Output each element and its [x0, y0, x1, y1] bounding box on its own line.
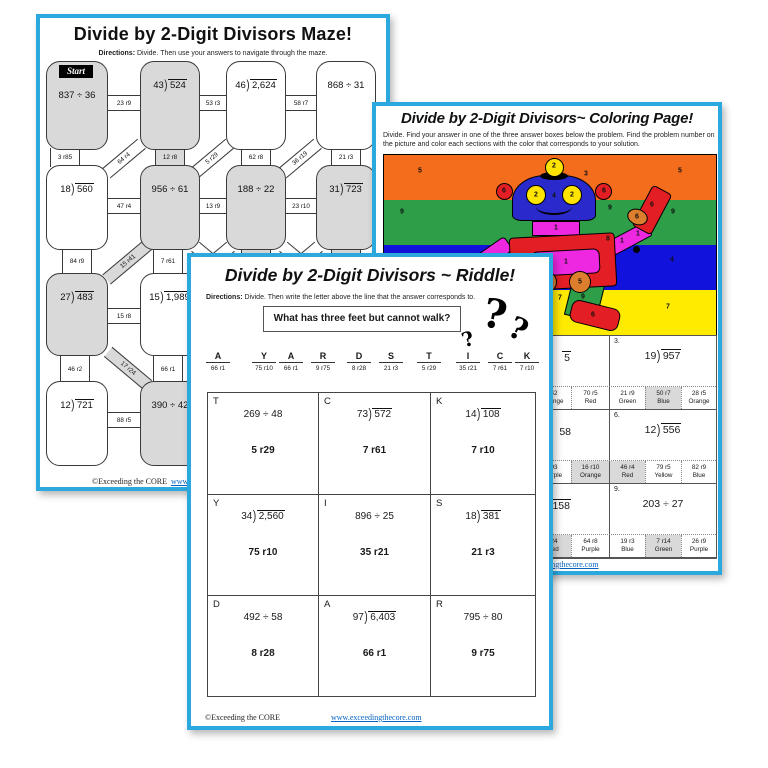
answer-color-name: Purple [581, 546, 599, 555]
blank-line [456, 361, 480, 363]
maze-problem-text: 27)483 [47, 292, 107, 303]
color-by-number-label: 6 [602, 188, 606, 195]
maze-problem-box: 188 ÷ 22 [226, 165, 286, 250]
cell-letter: S [436, 498, 442, 509]
blank-letter: A [215, 351, 222, 361]
maze-answer-label: 36 r19 [291, 150, 309, 167]
answer-value: 82 r9 [692, 464, 706, 473]
maze-answer-label: 7 r61 [161, 258, 175, 265]
maze-path-connector: 23 r9 [107, 95, 141, 111]
color-by-number-label: 5 [578, 279, 582, 286]
riddle-problem-cell: T269 ÷ 485 r29 [208, 393, 318, 494]
maze-problem-text: 31)723 [317, 184, 375, 195]
maze-problem-text: 18)560 [47, 184, 107, 195]
cell-problem: 34)2,560 [208, 511, 318, 522]
maze-title: Divide by 2-Digit Divisors Maze! [40, 24, 386, 45]
color-by-number-label: 2 [552, 163, 556, 170]
worksheet-preview-collage: { "colors": { "page_border": "#2BA9DF", … [0, 0, 768, 768]
website-link[interactable]: www.exceedingthecore.com [331, 713, 422, 722]
maze-path-connector: 88 r5 [107, 412, 141, 428]
maze-path-connector: 36 r19 [278, 138, 322, 178]
color-by-number-label: 9 [608, 205, 612, 212]
maze-problem-box: 43)524 [140, 61, 200, 150]
maze-answer-label: 64 r4 [116, 151, 131, 166]
blank-answer: 75 r10 [255, 365, 273, 372]
problem-fragment-text: 5 [562, 352, 571, 364]
maze-answer-label: 47 r4 [117, 203, 131, 210]
maze-problem-box: 46)2,624 [226, 61, 286, 150]
cell-problem: 73)572 [319, 409, 430, 420]
riddle-directions: Directions: Divide. Then write the lette… [206, 293, 475, 302]
maze-directions: Directions: Divide. Then use your answer… [40, 49, 386, 58]
question-mark-glyph: ? [459, 328, 476, 351]
maze-answer-label: 84 r9 [70, 258, 84, 265]
maze-path-connector: 13 r9 [196, 198, 230, 214]
color-by-number-label: 4 [670, 257, 674, 264]
answer-color-name: Orange [580, 472, 601, 481]
answer-option-cell: 50 r7Blue [645, 387, 681, 409]
answer-color-name: Blue [621, 546, 634, 555]
answer-value: 21 r9 [620, 390, 634, 399]
answer-value: 64 r8 [583, 538, 597, 547]
color-by-number-label: 1 [554, 225, 558, 232]
maze-answer-label: 58 r7 [294, 100, 308, 107]
answer-value: 70 r5 [583, 390, 597, 399]
maze-answer-label: 12 r8 [163, 154, 177, 161]
blank-line [488, 361, 512, 363]
answer-option-cell: 28 r5Orange [681, 387, 716, 409]
blank-answer: 7 r61 [493, 365, 507, 372]
maze-answer-label: 13 r9 [206, 203, 220, 210]
problem-cell: 6.12)556 [609, 410, 716, 460]
problem-number-label: 3. [614, 338, 620, 345]
coloring-title: Divide by 2-Digit Divisors~ Coloring Pag… [376, 110, 718, 127]
blank-line [252, 361, 276, 363]
maze-problem-box: 956 ÷ 61 [140, 165, 200, 250]
maze-answer-label: 66 r1 [161, 366, 175, 373]
blank-line [311, 361, 335, 363]
maze-answer-label: 21 r3 [339, 154, 353, 161]
blank-line [379, 361, 403, 363]
blank-letter: I [467, 351, 470, 361]
cell-letter: C [324, 396, 331, 407]
cell-answer: 7 r61 [319, 445, 430, 456]
color-by-number-label: 1 [620, 238, 624, 245]
problem-text: 203 ÷ 27 [610, 498, 716, 510]
answer-color-name: Green [619, 398, 637, 407]
blank-letter: A [288, 351, 295, 361]
maze-answer-label: 46 r2 [68, 366, 82, 373]
maze-answer-label: 3 r85 [58, 154, 72, 161]
answer-blank: S21 r3 [374, 351, 408, 372]
maze-problem-box: 27)483 [46, 273, 108, 356]
answer-blank: A66 r1 [201, 351, 235, 372]
answer-color-name: Red [585, 398, 597, 407]
maze-answer-label: 15 r41 [119, 253, 137, 270]
color-by-number-label: 9 [581, 294, 585, 301]
maze-answer-label: 17 r24 [119, 360, 137, 377]
answer-value: 50 r7 [656, 390, 670, 399]
answer-color-name: Yellow [655, 472, 673, 481]
blank-letter: C [497, 351, 504, 361]
maze-answer-label: 62 r8 [249, 154, 263, 161]
riddle-problem-cell: A97)6,40366 r1 [318, 595, 430, 696]
color-by-number-label: 7 [666, 304, 670, 311]
blank-answer: 8 r28 [352, 365, 366, 372]
coloring-directions: Divide. Find your answer in one of the t… [383, 131, 715, 150]
blank-letter: T [426, 351, 432, 361]
answer-color-name: Purple [690, 546, 708, 555]
blank-answer: 7 r10 [520, 365, 534, 372]
maze-path-connector: 64 r4 [102, 138, 146, 178]
answer-value: 16 r10 [582, 464, 600, 473]
cell-problem: 795 ÷ 80 [431, 612, 535, 623]
color-by-number-label: 2 [534, 192, 538, 199]
problem-number-label: 9. [614, 486, 620, 493]
cell-answer: 21 r3 [431, 547, 535, 558]
color-by-number-label: 6 [650, 202, 654, 209]
color-by-number-label: 6 [591, 312, 595, 319]
cell-answer: 5 r29 [208, 445, 318, 456]
cell-letter: D [213, 599, 220, 610]
blank-line [279, 361, 303, 363]
answer-option-cell: 19 r3Blue [609, 535, 645, 557]
maze-answer-label: 53 r3 [206, 100, 220, 107]
maze-path-connector: 7 r61 [153, 248, 183, 275]
answer-value: 28 r5 [692, 390, 706, 399]
blank-letter: Y [261, 351, 267, 361]
maze-problem-box: 868 ÷ 31 [316, 61, 376, 150]
blank-answer: 66 r1 [284, 365, 298, 372]
blank-answer: 5 r29 [422, 365, 436, 372]
maze-path-connector: 47 r4 [107, 198, 141, 214]
riddle-problem-cell: D492 ÷ 588 r28 [208, 595, 318, 696]
cell-answer: 7 r10 [431, 445, 535, 456]
answer-blank: A66 r1 [274, 351, 308, 372]
cell-letter: A [324, 599, 330, 610]
answer-option-cell: 26 r9Purple [681, 535, 716, 557]
directions-label: Directions: [206, 294, 243, 301]
answer-blank: D8 r28 [342, 351, 376, 372]
cell-problem: 14)108 [431, 409, 535, 420]
answer-blank: T5 r29 [412, 351, 446, 372]
maze-problem-text: 46)2,624 [227, 80, 285, 91]
color-by-number-label: 4 [552, 193, 556, 200]
answer-option-cell: 16 r10Orange [571, 461, 609, 483]
cell-answer: 66 r1 [319, 648, 430, 659]
answer-color-name: Green [655, 546, 673, 555]
blank-line [515, 361, 539, 363]
maze-answer-label: 5 r29 [204, 151, 219, 166]
problem-fragment-text: 158 [550, 500, 571, 512]
color-by-number-label: 9 [671, 209, 675, 216]
answer-value: 46 r4 [620, 464, 634, 473]
blank-answer: 9 r75 [316, 365, 330, 372]
answer-option-cell: 7 r14Green [645, 535, 681, 557]
blank-letter: S [388, 351, 394, 361]
maze-path-connector: 84 r9 [62, 248, 92, 275]
blank-letter: K [524, 351, 531, 361]
maze-problem-text: 837 ÷ 36 [47, 90, 107, 101]
maze-problem-text: 868 ÷ 31 [317, 80, 375, 91]
directions-text: Divide. Then use your answers to navigat… [137, 50, 328, 57]
problem-cell: 9.203 ÷ 27 [609, 484, 716, 534]
problem-text: 19)957 [610, 350, 716, 362]
color-by-number-label: 1 [636, 231, 640, 238]
maze-answer-label: 23 r10 [292, 203, 310, 210]
maze-problem-box: 12)721 [46, 381, 108, 466]
maze-path-connector: 53 r3 [196, 95, 230, 111]
answer-color-name: Orange [688, 398, 709, 407]
blank-answer: 35 r21 [459, 365, 477, 372]
cell-answer: 9 r75 [431, 648, 535, 659]
answer-value: 26 r9 [692, 538, 706, 547]
color-by-number-label: 5 [678, 168, 682, 175]
maze-problem-text: 43)524 [141, 80, 199, 91]
robot-mouth [536, 199, 572, 215]
cell-answer: 35 r21 [319, 547, 430, 558]
riddle-worksheet-page: Divide by 2-Digit Divisors ~ Riddle! Dir… [187, 253, 553, 730]
copyright-text: ©Exceeding the CORE [205, 713, 280, 722]
color-by-number-label: 9 [400, 209, 404, 216]
maze-problem-text: 956 ÷ 61 [141, 184, 199, 195]
answer-color-name: Blue [693, 472, 706, 481]
answer-option-cell: 79 r5Yellow [645, 461, 681, 483]
riddle-question-box: What has three feet but cannot walk? [263, 306, 461, 332]
color-by-number-label: 6 [502, 188, 506, 195]
problem-cell: 3.19)957 [609, 336, 716, 386]
cell-problem: 97)6,403 [319, 612, 430, 623]
cell-letter: I [324, 498, 327, 509]
blank-line [417, 361, 441, 363]
copyright-text: ©Exceeding the CORE [92, 477, 167, 486]
maze-answer-label: 88 r5 [117, 417, 131, 424]
answer-blank: K7 r10 [510, 351, 544, 372]
answer-color-name: Blue [657, 398, 670, 407]
answer-option-cell: 21 r9Green [609, 387, 645, 409]
blank-letter: R [320, 351, 327, 361]
answer-value: 19 r3 [620, 538, 634, 547]
cell-problem: 18)381 [431, 511, 535, 522]
riddle-title: Divide by 2-Digit Divisors ~ Riddle! [191, 265, 549, 286]
answer-option-cell: 46 r4Red [609, 461, 645, 483]
cell-letter: R [436, 599, 443, 610]
maze-problem-text: 188 ÷ 22 [227, 184, 285, 195]
problem-fragment-text: 58 [559, 426, 571, 438]
answer-color-name: Red [622, 472, 634, 481]
answer-blank: I35 r21 [451, 351, 485, 372]
maze-problem-box: 18)560 [46, 165, 108, 250]
cell-problem: 492 ÷ 58 [208, 612, 318, 623]
start-badge: Start [59, 65, 93, 78]
problem-text: 12)556 [610, 424, 716, 436]
blank-answer: 21 r3 [384, 365, 398, 372]
maze-answer-label: 15 r8 [117, 313, 131, 320]
blank-line [347, 361, 371, 363]
maze-problem-text: 12)721 [47, 400, 107, 411]
riddle-problem-cell: I896 ÷ 2535 r21 [318, 494, 430, 595]
cell-answer: 75 r10 [208, 547, 318, 558]
answer-option-cell: 82 r9Blue [681, 461, 716, 483]
answer-value: 7 r14 [656, 538, 670, 547]
maze-problem-box: Start837 ÷ 36 [46, 61, 108, 150]
riddle-problem-cell: Y34)2,56075 r10 [208, 494, 318, 595]
cell-letter: Y [213, 498, 219, 509]
directions-text: Divide. Then write the letter above the … [245, 294, 476, 301]
riddle-problem-cell: S18)38121 r3 [430, 494, 535, 595]
color-by-number-label: 2 [570, 192, 574, 199]
riddle-problem-grid: T269 ÷ 485 r29C73)5727 r61K14)1087 r10Y3… [207, 392, 536, 697]
cell-problem: 269 ÷ 48 [208, 409, 318, 420]
blank-line [206, 361, 230, 363]
riddle-problem-cell: C73)5727 r61 [318, 393, 430, 494]
maze-path-connector: 15 r8 [107, 308, 141, 324]
answer-option-cell: 70 r5Red [571, 387, 609, 409]
maze-path-connector: 23 r10 [284, 198, 318, 214]
color-by-number-label: 7 [558, 295, 562, 302]
cell-answer: 8 r28 [208, 648, 318, 659]
robot-hand-dot [633, 246, 640, 253]
color-by-number-label: 6 [635, 214, 639, 221]
directions-label: Directions: [98, 50, 135, 57]
riddle-problem-cell: R795 ÷ 809 r75 [430, 595, 535, 696]
question-mark-glyph: ? [479, 293, 510, 337]
answer-value: 79 r5 [656, 464, 670, 473]
riddle-problem-cell: K14)1087 r10 [430, 393, 535, 494]
color-by-number-label: 5 [418, 168, 422, 175]
blank-answer: 66 r1 [211, 365, 225, 372]
maze-problem-box: 31)723 [316, 165, 376, 250]
cell-letter: T [213, 396, 219, 407]
answer-blank: R9 r75 [306, 351, 340, 372]
cell-problem: 896 ÷ 25 [319, 511, 430, 522]
riddle-answer-blanks: A66 r1Y75 r10A66 r1R9 r75D8 r28S21 r3T5 … [191, 351, 549, 381]
color-by-number-label: 1 [564, 259, 568, 266]
maze-answer-label: 23 r9 [117, 100, 131, 107]
blank-letter: D [356, 351, 363, 361]
cell-letter: K [436, 396, 442, 407]
color-by-number-label: 3 [584, 171, 588, 178]
maze-path-connector: 58 r7 [284, 95, 318, 111]
problem-number-label: 6. [614, 412, 620, 419]
color-by-number-label: 8 [606, 236, 610, 243]
answer-option-cell: 64 r8Purple [571, 535, 609, 557]
question-mark-glyph: ? [503, 313, 532, 348]
